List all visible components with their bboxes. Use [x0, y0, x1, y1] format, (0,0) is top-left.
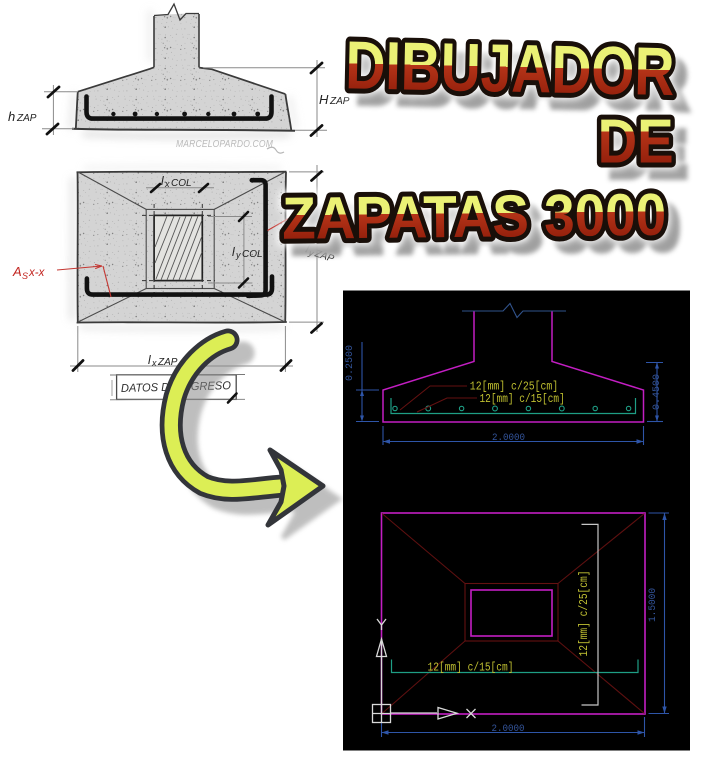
svg-text:x: x — [151, 358, 157, 368]
svg-text:12[mm] c/15[cm]: 12[mm] c/15[cm] — [480, 392, 565, 406]
svg-text:ZAP: ZAP — [16, 113, 37, 124]
svg-text:2.0000: 2.0000 — [492, 723, 525, 735]
svg-text:DE: DE — [598, 108, 674, 177]
svg-text:MARCELOPARDO.COM: MARCELOPARDO.COM — [176, 138, 273, 150]
svg-text:2.0000: 2.0000 — [492, 432, 525, 444]
svg-text:A: A — [12, 264, 22, 279]
svg-text:l: l — [161, 174, 164, 188]
svg-text:S: S — [22, 271, 28, 281]
svg-text:ZAP: ZAP — [157, 357, 178, 368]
svg-text:12[mm] c/25[cm]: 12[mm] c/25[cm] — [577, 571, 591, 657]
svg-text:0.2500: 0.2500 — [344, 345, 356, 381]
svg-text:y: y — [235, 250, 241, 260]
svg-text:1.5000: 1.5000 — [647, 588, 659, 622]
svg-text:x-x: x-x — [28, 267, 46, 279]
svg-text:l: l — [148, 353, 151, 367]
svg-text:x: x — [164, 179, 170, 189]
svg-text:l: l — [232, 245, 235, 259]
svg-text:COL: COL — [242, 249, 263, 260]
svg-text:COL: COL — [171, 178, 192, 189]
svg-text:h: h — [8, 109, 15, 124]
svg-text:0.4500: 0.4500 — [651, 374, 663, 410]
svg-text:ZAPATAS 3000: ZAPATAS 3000 — [282, 181, 667, 252]
svg-text:12[mm] c/15[cm]: 12[mm] c/15[cm] — [428, 661, 514, 675]
svg-text:DIBUJADOR: DIBUJADOR — [345, 27, 676, 110]
svg-text:H: H — [319, 92, 329, 107]
